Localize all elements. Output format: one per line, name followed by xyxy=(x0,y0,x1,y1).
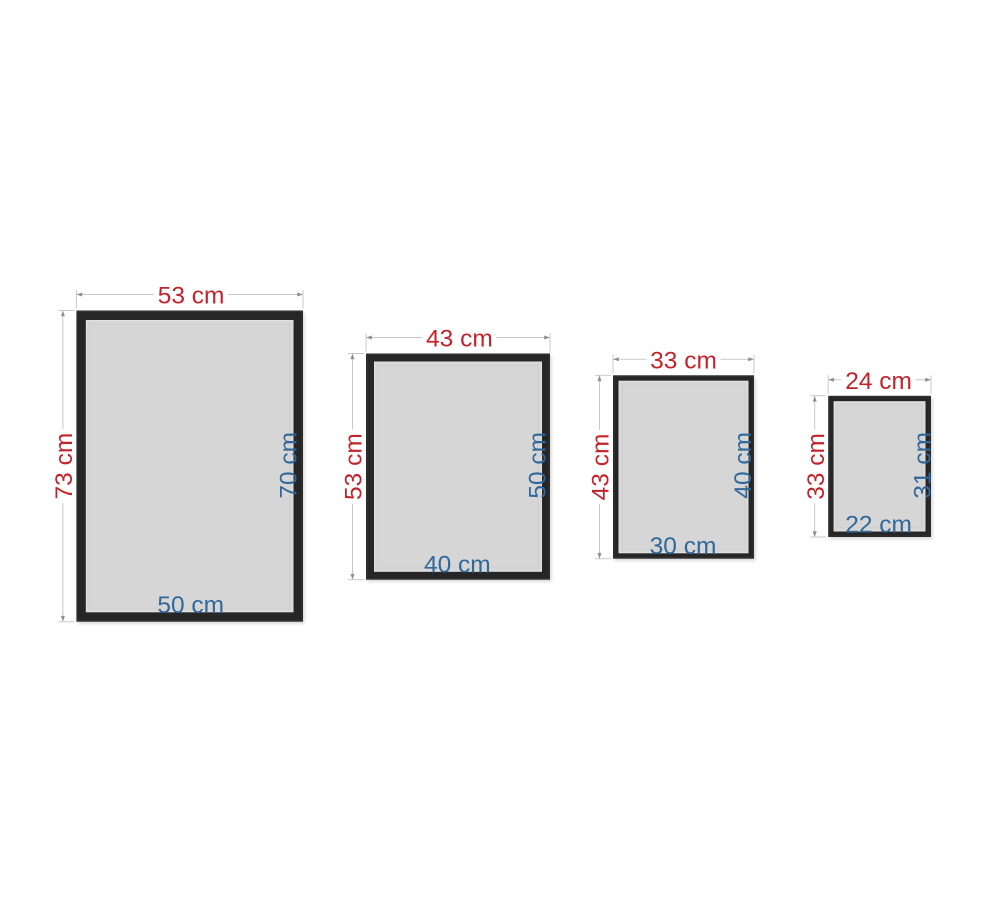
svg-text:53 cm: 53 cm xyxy=(341,433,368,500)
svg-text:30 cm: 30 cm xyxy=(650,533,717,560)
svg-text:40 cm: 40 cm xyxy=(730,432,757,499)
svg-text:33 cm: 33 cm xyxy=(650,348,717,375)
svg-text:40 cm: 40 cm xyxy=(424,552,491,579)
svg-text:50 cm: 50 cm xyxy=(525,432,552,499)
svg-text:33 cm: 33 cm xyxy=(803,433,830,500)
svg-text:70 cm: 70 cm xyxy=(275,432,302,499)
svg-text:43 cm: 43 cm xyxy=(588,434,615,501)
svg-text:22 cm: 22 cm xyxy=(845,512,912,539)
svg-text:43 cm: 43 cm xyxy=(426,326,493,353)
svg-text:50 cm: 50 cm xyxy=(157,592,224,619)
svg-text:73 cm: 73 cm xyxy=(51,433,78,500)
svg-text:53 cm: 53 cm xyxy=(158,283,225,310)
svg-text:31 cm: 31 cm xyxy=(910,432,937,499)
svg-text:24 cm: 24 cm xyxy=(845,368,912,395)
